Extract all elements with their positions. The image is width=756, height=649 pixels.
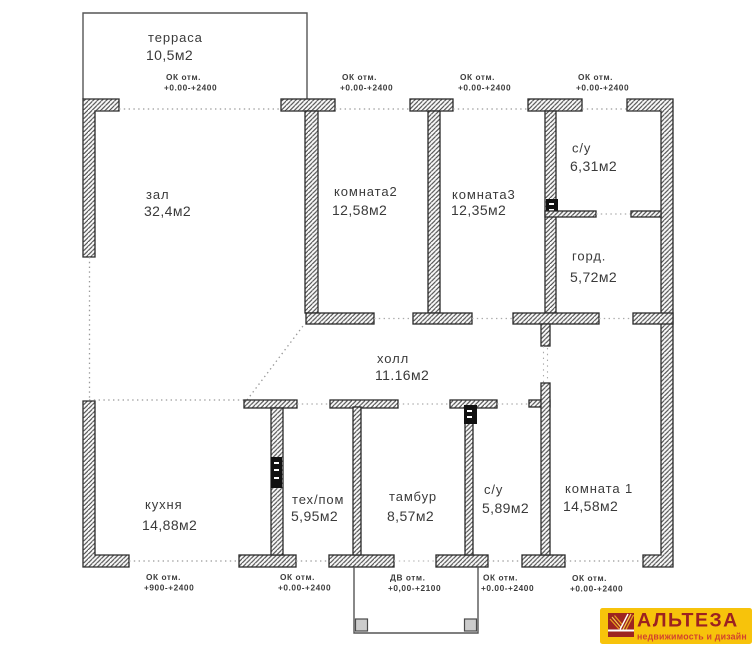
svg-text:ОК отм.: ОК отм. <box>280 572 315 582</box>
svg-text:с/у: с/у <box>484 482 503 497</box>
svg-text:+0.00-+2400: +0.00-+2400 <box>458 83 511 93</box>
svg-text:+0.00-+2400: +0.00-+2400 <box>278 583 331 593</box>
svg-text:+0.00-+2400: +0.00-+2400 <box>340 83 393 93</box>
svg-text:8,57м2: 8,57м2 <box>387 508 434 524</box>
svg-text:ОК отм.: ОК отм. <box>578 72 613 82</box>
svg-text:ОК отм.: ОК отм. <box>166 72 201 82</box>
svg-text:5,95м2: 5,95м2 <box>291 508 338 524</box>
svg-text:терраса: терраса <box>148 30 203 45</box>
svg-text:ОК отм.: ОК отм. <box>146 572 181 582</box>
svg-text:комната3: комната3 <box>452 187 516 202</box>
svg-text:5,72м2: 5,72м2 <box>570 269 617 285</box>
svg-text:ОК отм.: ОК отм. <box>342 72 377 82</box>
svg-text:11.16м2: 11.16м2 <box>375 367 429 383</box>
svg-text:кухня: кухня <box>145 497 183 512</box>
svg-text:тамбур: тамбур <box>389 489 437 504</box>
svg-text:5,89м2: 5,89м2 <box>482 500 529 516</box>
svg-text:+0.00-+2400: +0.00-+2400 <box>570 584 623 594</box>
svg-text:зал: зал <box>146 187 169 202</box>
svg-text:+900-+2400: +900-+2400 <box>144 583 194 593</box>
svg-text:+0,00-+2100: +0,00-+2100 <box>388 583 441 593</box>
svg-text:ДВ отм.: ДВ отм. <box>390 573 425 583</box>
svg-text:комната2: комната2 <box>334 184 398 199</box>
svg-text:с/у: с/у <box>572 141 591 156</box>
svg-text:АЛЬТЕЗА: АЛЬТЕЗА <box>637 610 739 632</box>
svg-text:горд.: горд. <box>572 249 606 264</box>
svg-text:ОК отм.: ОК отм. <box>460 72 495 82</box>
svg-text:ОК отм.: ОК отм. <box>572 573 607 583</box>
svg-text:холл: холл <box>377 351 409 366</box>
svg-text:14,58м2: 14,58м2 <box>563 498 618 514</box>
svg-text:ОК отм.: ОК отм. <box>483 573 518 583</box>
svg-text:32,4м2: 32,4м2 <box>144 203 191 219</box>
svg-text:14,88м2: 14,88м2 <box>142 517 197 533</box>
svg-text:+0.00-+2400: +0.00-+2400 <box>576 83 629 93</box>
svg-text:+0.00-+2400: +0.00-+2400 <box>164 83 217 93</box>
svg-text:12,35м2: 12,35м2 <box>451 202 506 218</box>
svg-text:комната 1: комната 1 <box>565 481 633 496</box>
svg-text:+0.00-+2400: +0.00-+2400 <box>481 583 534 593</box>
svg-text:10,5м2: 10,5м2 <box>146 47 193 63</box>
svg-text:тех/пом: тех/пом <box>292 492 344 507</box>
svg-text:12,58м2: 12,58м2 <box>332 202 387 218</box>
svg-text:6,31м2: 6,31м2 <box>570 158 617 174</box>
svg-text:недвижимость и дизайн: недвижимость и дизайн <box>637 632 747 642</box>
